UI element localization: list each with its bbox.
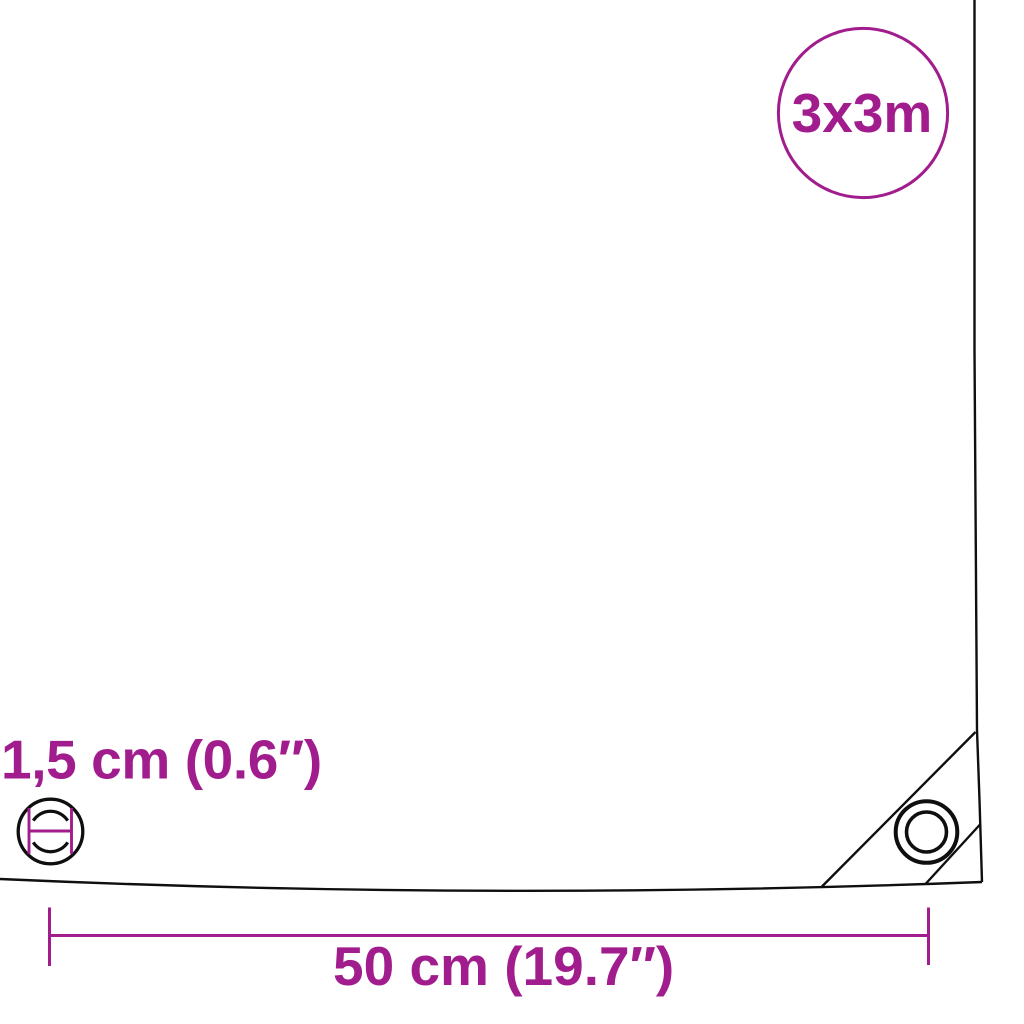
svg-text:3x3m: 3x3m xyxy=(792,82,933,144)
svg-text:50 cm (19.7″): 50 cm (19.7″) xyxy=(333,935,674,997)
svg-text:1,5 cm (0.6″): 1,5 cm (0.6″) xyxy=(1,729,322,791)
